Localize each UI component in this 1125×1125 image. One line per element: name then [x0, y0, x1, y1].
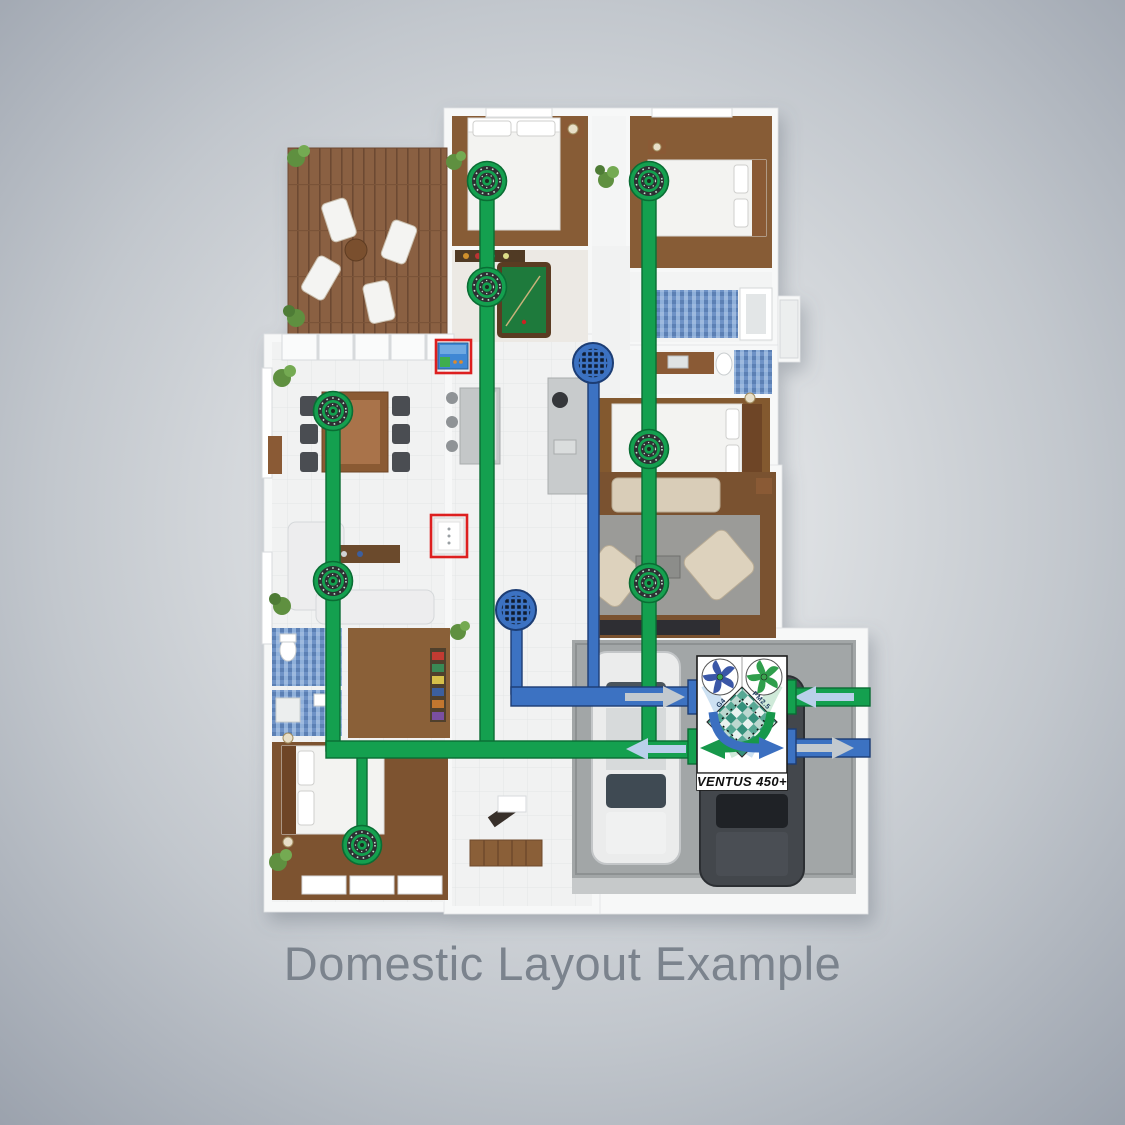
supply-diffuser-icon: [314, 562, 353, 601]
supply-diffuser-icon: [468, 162, 507, 201]
shower-nook: [780, 300, 798, 358]
page-title: Domestic Layout Example: [0, 936, 1125, 991]
bed: [282, 746, 384, 834]
tv: [600, 620, 720, 635]
sofa: [612, 478, 720, 512]
supply-diffuser-icon: [343, 826, 382, 865]
supply-diffuser-icon: [468, 268, 507, 307]
sunroom-windows: [282, 334, 454, 360]
wall-controller: [438, 343, 468, 369]
heat-recovery-unit: G4 PM2.5 VENTUS 450+: [688, 656, 796, 790]
supply-diffuser-icon: [630, 162, 669, 201]
supply-diffuser-icon: [630, 564, 669, 603]
supply-fan-icon: [745, 659, 782, 695]
stairs: [470, 840, 542, 866]
family-room: [572, 472, 776, 638]
ventilation-layout-figure: G4 PM2.5 VENTUS 450+ Domestic Layout Exa…: [0, 0, 1125, 1125]
supply-diffuser-icon: [630, 430, 669, 469]
hallway-wardrobe: [348, 628, 450, 738]
extract-grille-icon: [496, 590, 536, 630]
extract-fan-icon: [701, 659, 738, 695]
supply-duct: [480, 181, 494, 749]
unit-label: VENTUS 450+: [697, 774, 787, 789]
wall-switch: [434, 518, 464, 554]
extract-grille-icon: [573, 343, 613, 383]
extract-duct: [588, 363, 599, 693]
supply-diffuser-icon: [314, 392, 353, 431]
